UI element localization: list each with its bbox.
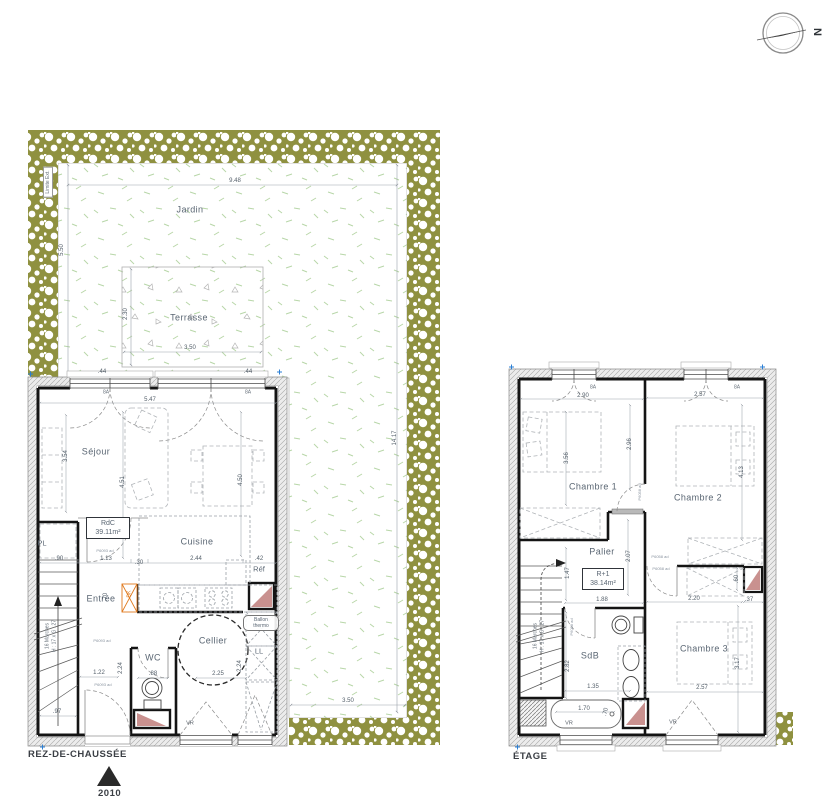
door-code-label: P6058 ad — [638, 483, 642, 500]
dimension-label: .44 — [244, 369, 252, 375]
dimension-label: 1.70 — [578, 706, 590, 712]
dimension-label: .44 — [98, 369, 106, 375]
terrasse-label: Terrasse — [170, 314, 208, 323]
annotation-label: 8A — [245, 391, 251, 396]
dimension-label: 2.07 — [626, 550, 632, 562]
dimension-label: 9.48 — [229, 178, 241, 184]
dimension-label: 3.54 — [63, 450, 69, 462]
dimension-label: 1.13 — [100, 556, 112, 562]
jardin-label: Jardin — [177, 206, 204, 215]
shutter-label: VR — [565, 721, 573, 727]
dimension-label: 14.17 — [392, 430, 398, 445]
door-code-label: P6058 ad — [652, 567, 669, 571]
dimension-label: 2.25 — [212, 671, 224, 677]
dimension-label: .30 — [135, 560, 143, 566]
annotation-label: 8A — [590, 386, 596, 391]
dimension-label: 3.50 — [184, 345, 196, 351]
dimension-label: .97 — [53, 709, 61, 715]
dimension-label: .70 — [103, 593, 109, 601]
sdb-label: SdB — [581, 652, 599, 661]
dimension-label: 2.24 — [118, 662, 124, 674]
dimension-label: .60 — [734, 575, 740, 583]
door-code-label: P6088 ad — [570, 618, 574, 635]
dimension-label: 4.51 — [120, 476, 126, 488]
dimension-label: 2.44 — [190, 556, 202, 562]
dimension-label: 4.13 — [739, 466, 745, 478]
ref-label: Réf — [253, 565, 265, 573]
dimension-label: .88 — [149, 671, 157, 677]
dimension-label: 3.56 — [564, 452, 570, 464]
upper-area-tag: R+1 38.14m² — [582, 568, 624, 590]
chambre1-label: Chambre 1 — [569, 483, 617, 492]
palier-label: Palier — [589, 548, 614, 557]
floor-plan-sheet: JardinTerrasse9.485.5014.173.502.303.50S… — [0, 0, 828, 800]
dimension-label: 3.17 — [735, 657, 741, 669]
dimension-label: .70 — [602, 707, 610, 717]
stair-note: H : 17 x G : 27 — [53, 620, 58, 652]
chambre2-label: Chambre 2 — [674, 494, 722, 503]
entree-label: Entrée — [87, 595, 116, 604]
dimension-label: 1.35 — [587, 684, 599, 690]
dimension-label: .90 — [55, 556, 63, 562]
door-code-label: P6058 ad — [651, 555, 668, 559]
dimension-label: 2.57 — [694, 392, 706, 398]
stair-note: 16 Marches — [46, 623, 51, 649]
dimension-label: 2.90 — [577, 393, 589, 399]
dimension-label: 1.47 — [565, 567, 571, 579]
annotation-label: 8A — [103, 391, 109, 396]
upper-area-value: 38.14m² — [585, 579, 621, 588]
door-code-label: P6093 ad — [96, 549, 113, 553]
shutter-label: VR — [186, 721, 194, 727]
plan-labels: JardinTerrasse9.485.5014.173.502.303.50S… — [0, 0, 828, 800]
annotation-label: 8A — [734, 386, 740, 391]
duct-label: DK — [128, 591, 133, 598]
ground-area-tag: RdC 39.11m² — [86, 517, 130, 539]
dimension-label: .42 — [255, 556, 263, 562]
stair-note: H : 17 x G : 27 — [541, 620, 546, 652]
dimension-label: 5.47 — [144, 397, 156, 403]
north-letter: N — [811, 28, 823, 36]
ground-area-name: RdC — [89, 519, 127, 528]
ll-label: LL — [255, 647, 263, 655]
cuisine-label: Cuisine — [181, 538, 214, 547]
sejour-label: Séjour — [82, 448, 110, 457]
dimension-label: 1.22 — [93, 670, 105, 676]
dimension-label: 2.96 — [627, 438, 633, 450]
wc-label: WC — [145, 654, 161, 663]
boundary-limit-label: Limite Ext. — [43, 166, 53, 197]
chambre3-label: Chambre 3 — [680, 645, 728, 654]
ground-area-value: 39.11m² — [89, 528, 127, 537]
dimension-label: 2.57 — [696, 685, 708, 691]
dimension-label: 2.82 — [565, 660, 571, 672]
pl-label: PL — [37, 539, 46, 547]
shutter-label: VR — [669, 720, 677, 726]
door-code-label: P6093 ad — [94, 683, 111, 687]
upper-area-name: R+1 — [585, 570, 621, 579]
dimension-label: 5.50 — [59, 244, 65, 256]
door-code-label: P6093 ad — [93, 639, 110, 643]
cellier-label: Cellier — [199, 637, 227, 646]
dimension-label: 2.30 — [123, 308, 129, 320]
dimension-label: 2.24 — [237, 660, 243, 672]
water-heater-label: Ballon thermo — [243, 615, 279, 631]
stair-note: 16 Marches — [534, 623, 539, 649]
dimension-label: .37 — [745, 597, 753, 603]
dimension-label: 1.88 — [596, 597, 608, 603]
dimension-label: 4.50 — [238, 474, 244, 486]
dimension-label: 3.50 — [342, 698, 354, 704]
dimension-label: 2.20 — [688, 596, 700, 602]
